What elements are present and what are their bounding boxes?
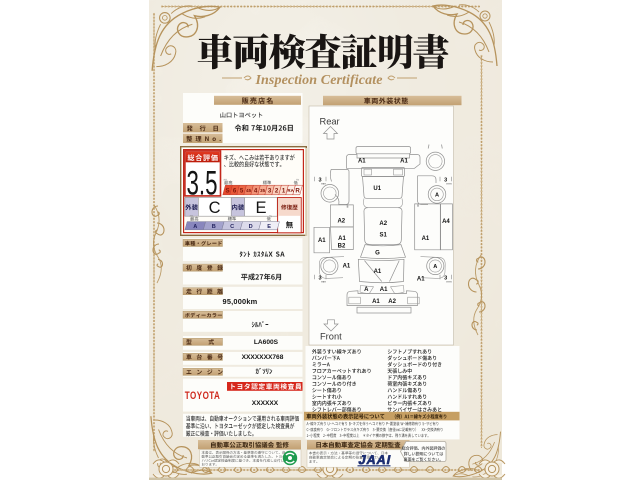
svg-text:C: C <box>209 199 221 217</box>
svg-text:mm: mm <box>447 280 452 284</box>
svg-text:1: 1 <box>282 188 286 195</box>
svg-text:XXXXXXX768: XXXXXXX768 <box>242 354 284 361</box>
svg-text:A: A <box>435 193 439 199</box>
svg-text:Inspection Certificate: Inspection Certificate <box>254 73 382 88</box>
svg-text:B2: B2 <box>338 244 346 250</box>
svg-text:mm: mm <box>321 280 326 284</box>
svg-text:A1: A1 <box>400 159 408 165</box>
svg-text:45: 45 <box>246 188 251 193</box>
svg-text:G: G <box>375 251 380 257</box>
svg-text:E: E <box>267 224 271 230</box>
svg-text:R: R <box>295 188 300 195</box>
svg-text:A2: A2 <box>388 299 396 305</box>
svg-text:A1: A1 <box>380 287 388 293</box>
svg-text:A1: A1 <box>374 269 382 275</box>
svg-text:2: 2 <box>275 188 279 195</box>
svg-text:Front: Front <box>320 331 342 341</box>
svg-text:A: A <box>193 224 197 230</box>
svg-text:A2: A2 <box>379 221 387 227</box>
svg-text:35: 35 <box>260 188 265 193</box>
svg-text:XXXXXX: XXXXXX <box>252 400 279 407</box>
svg-text:E: E <box>255 199 266 217</box>
svg-text:A1: A1 <box>338 236 346 242</box>
svg-text:A1: A1 <box>343 263 351 269</box>
svg-text:B: B <box>212 224 216 230</box>
svg-text:TOYOTA: TOYOTA <box>185 389 221 401</box>
svg-text:A2: A2 <box>337 219 345 225</box>
svg-text:U1: U1 <box>373 186 381 192</box>
svg-text:mm: mm <box>447 182 452 186</box>
svg-text:C: C <box>230 224 234 230</box>
svg-text:A1: A1 <box>318 238 326 244</box>
svg-text:RA: RA <box>287 188 294 193</box>
svg-text:LA600S: LA600S <box>254 339 279 346</box>
svg-text:A1: A1 <box>372 299 380 305</box>
svg-text:S1: S1 <box>380 232 388 238</box>
svg-text:A1: A1 <box>422 236 430 242</box>
svg-text:A1: A1 <box>417 276 425 282</box>
svg-text:3: 3 <box>268 188 272 195</box>
svg-text:A: A <box>433 264 437 270</box>
svg-text:A4: A4 <box>442 219 450 225</box>
svg-text:JAAI: JAAI <box>357 453 392 467</box>
svg-text:6: 6 <box>233 188 237 195</box>
svg-text:mm: mm <box>321 182 326 186</box>
svg-text:3.5: 3.5 <box>187 165 218 203</box>
svg-text:A: A <box>364 287 369 293</box>
svg-text:A1: A1 <box>358 159 366 165</box>
svg-text:S: S <box>226 188 230 195</box>
svg-text:D: D <box>249 224 253 230</box>
svg-text:5: 5 <box>240 188 244 195</box>
svg-text:95,000km: 95,000km <box>223 297 258 306</box>
svg-text:4: 4 <box>254 188 258 195</box>
svg-text:Rear: Rear <box>320 117 340 127</box>
